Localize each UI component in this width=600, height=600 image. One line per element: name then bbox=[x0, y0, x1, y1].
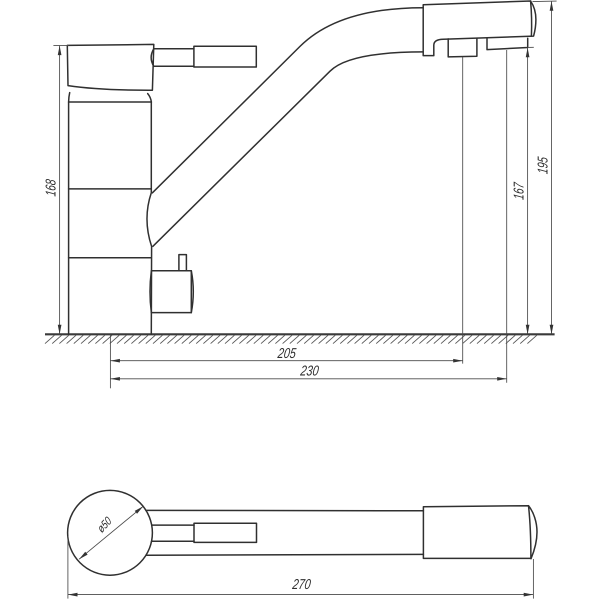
svg-text:167: 167 bbox=[512, 181, 528, 201]
svg-text:195: 195 bbox=[536, 155, 552, 175]
svg-text:168: 168 bbox=[44, 178, 60, 197]
svg-text:205: 205 bbox=[276, 346, 298, 362]
svg-text:270: 270 bbox=[291, 577, 312, 593]
svg-text:230: 230 bbox=[299, 363, 320, 379]
